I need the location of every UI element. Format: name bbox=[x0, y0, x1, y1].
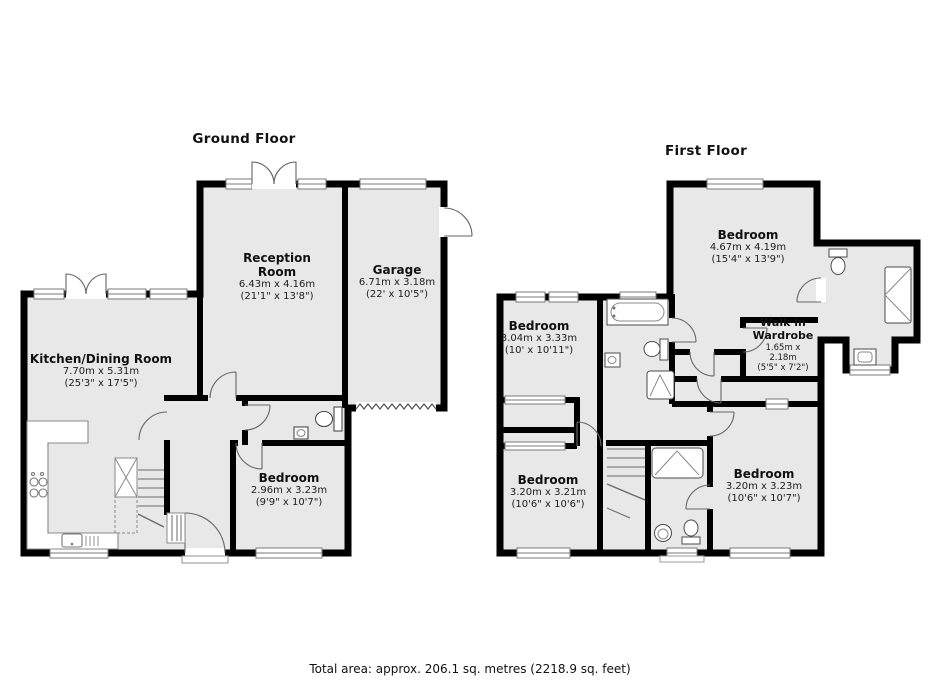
room-name: Bedroom bbox=[234, 471, 344, 485]
room-name: Bedroom bbox=[688, 228, 808, 242]
room-dims-imperial: (10' x 10'11") bbox=[484, 345, 594, 357]
ground-floor-title: Ground Floor bbox=[192, 131, 295, 147]
shower-icon bbox=[652, 448, 703, 478]
room-label-bedroom-left: Bedroom 3.04m x 3.33m (10' x 10'11") bbox=[484, 319, 594, 357]
basin-icon bbox=[854, 349, 876, 365]
room-dims-imperial: (10'6" x 10'7") bbox=[704, 493, 824, 505]
room-name: Reception Room bbox=[222, 251, 332, 279]
room-dims-metric: 1.65m x 2.18m bbox=[752, 343, 814, 363]
basin-icon bbox=[294, 427, 308, 439]
first-floor-title: First Floor bbox=[665, 143, 747, 159]
room-dims-metric: 7.70m x 5.31m bbox=[26, 366, 176, 378]
basin-icon bbox=[655, 525, 672, 542]
room-dims-imperial: (21'1" x 13'8") bbox=[222, 291, 332, 303]
room-label-garage: Garage 6.71m x 3.18m (22' x 10'5") bbox=[342, 263, 452, 301]
room-label-walk-in-wardrobe: Walk in Wardrobe 1.65m x 2.18m (5'5" x 7… bbox=[752, 317, 814, 373]
room-dims-imperial: (9'9" x 10'7") bbox=[234, 497, 344, 509]
room-name: Bedroom bbox=[704, 467, 824, 481]
room-dims-imperial: (15'4" x 13'9") bbox=[688, 254, 808, 266]
room-label-bedroom-bottom-right: Bedroom 3.20m x 3.23m (10'6" x 10'7") bbox=[704, 467, 824, 505]
floorplan-page: Ground Floor First Floor Reception Room … bbox=[0, 0, 940, 684]
room-dims-metric: 4.67m x 4.19m bbox=[688, 242, 808, 254]
room-name: Bedroom bbox=[484, 319, 594, 333]
room-dims-metric: 3.04m x 3.33m bbox=[484, 333, 594, 345]
room-name: Bedroom bbox=[493, 473, 603, 487]
room-dims-imperial: (22' x 10'5") bbox=[342, 289, 452, 301]
room-name: Garage bbox=[342, 263, 452, 277]
room-label-kitchen-dining: Kitchen/Dining Room 7.70m x 5.31m (25'3"… bbox=[26, 352, 176, 390]
total-area-text: Total area: approx. 206.1 sq. metres (22… bbox=[309, 662, 630, 676]
shower-icon bbox=[647, 371, 674, 399]
room-dims-metric: 3.20m x 3.21m bbox=[493, 487, 603, 499]
room-label-bedroom-master: Bedroom 4.67m x 4.19m (15'4" x 13'9") bbox=[688, 228, 808, 266]
basin-icon bbox=[605, 353, 620, 367]
room-label-bedroom-bottom-left: Bedroom 3.20m x 3.21m (10'6" x 10'6") bbox=[493, 473, 603, 511]
room-dims-imperial: (25'3" x 17'5") bbox=[26, 378, 176, 390]
toilet-icon bbox=[682, 520, 700, 544]
toilet-icon bbox=[829, 249, 847, 275]
room-name: Kitchen/Dining Room bbox=[26, 352, 176, 366]
room-dims-metric: 6.43m x 4.16m bbox=[222, 279, 332, 291]
wardrobe-icon bbox=[885, 267, 911, 323]
room-label-ground-bedroom: Bedroom 2.96m x 3.23m (9'9" x 10'7") bbox=[234, 471, 344, 509]
room-dims-metric: 3.20m x 3.23m bbox=[704, 481, 824, 493]
room-dims-imperial: (10'6" x 10'6") bbox=[493, 499, 603, 511]
room-dims-imperial: (5'5" x 7'2") bbox=[752, 363, 814, 373]
room-dims-metric: 6.71m x 3.18m bbox=[342, 277, 452, 289]
room-label-reception: Reception Room 6.43m x 4.16m (21'1" x 13… bbox=[222, 251, 332, 303]
room-name: Walk in Wardrobe bbox=[752, 317, 814, 343]
room-dims-metric: 2.96m x 3.23m bbox=[234, 485, 344, 497]
bathtub-icon bbox=[607, 299, 668, 325]
